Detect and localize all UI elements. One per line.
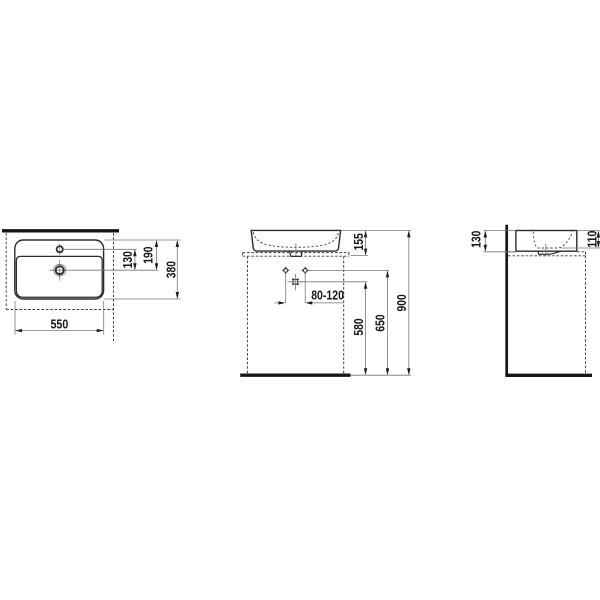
svg-text:900: 900 [394,294,409,311]
svg-text:110: 110 [584,231,599,248]
svg-text:580: 580 [351,318,366,335]
svg-text:80-120: 80-120 [311,288,344,303]
svg-text:130: 130 [120,251,135,268]
svg-text:550: 550 [51,317,69,332]
svg-text:130: 130 [468,231,483,248]
svg-text:650: 650 [373,314,388,331]
svg-text:155: 155 [351,233,366,250]
svg-text:190: 190 [141,247,156,264]
svg-text:380: 380 [163,261,178,278]
